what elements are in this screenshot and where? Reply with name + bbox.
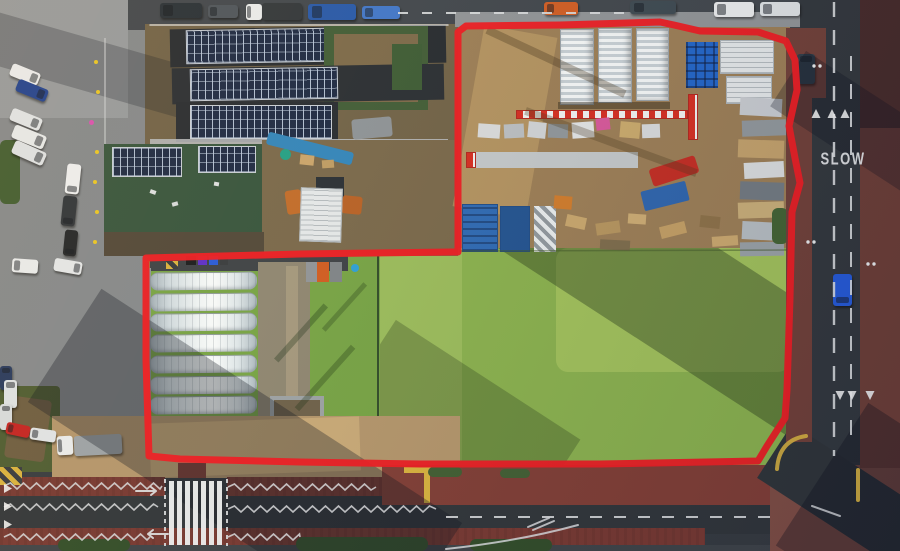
zebra-stripe-4 xyxy=(193,481,198,545)
cycle-symbol-dot-5 xyxy=(866,262,869,265)
give-way-triangle-up-1 xyxy=(812,109,821,118)
give-way-triangle-up-3 xyxy=(841,109,850,118)
lane-chevron-b xyxy=(533,521,554,530)
markings-and-boundary-overlay xyxy=(0,0,900,551)
field-fence-line xyxy=(460,250,786,251)
aerial-photograph: SLOW xyxy=(0,0,900,551)
cycle-symbol-dot-3 xyxy=(806,240,809,243)
give-way-triangle-down-1 xyxy=(836,391,845,400)
road-text-slow: SLOW xyxy=(820,148,866,168)
lane-chevron-a xyxy=(528,518,549,527)
cycle-symbol-dot-6 xyxy=(872,262,875,265)
zebra-stripe-1 xyxy=(169,481,174,545)
zigzag-line-6 xyxy=(228,534,300,540)
give-way-chevron-3 xyxy=(4,520,12,529)
zigzag-line-1 xyxy=(4,483,162,489)
cycle-symbol-dot-2 xyxy=(818,64,821,67)
give-way-chevron-1 xyxy=(4,484,12,493)
cycle-symbol-dot-4 xyxy=(812,240,815,243)
zebra-stripe-3 xyxy=(185,481,190,545)
zebra-stripe-7 xyxy=(217,481,222,545)
zebra-stripe-6 xyxy=(209,481,214,545)
junction-curve xyxy=(446,525,578,549)
kerb-curve xyxy=(812,506,840,516)
give-way-triangle-up-2 xyxy=(828,109,837,118)
site-boundary-line xyxy=(146,22,800,464)
zigzag-line-2 xyxy=(228,484,376,490)
give-way-triangle-down-2 xyxy=(848,391,857,400)
give-way-triangle-down-3 xyxy=(866,391,875,400)
zigzag-line-3 xyxy=(4,504,158,510)
junction-yellow-arc xyxy=(777,436,806,469)
cycle-symbol-dot-1 xyxy=(812,64,815,67)
zigzag-line-5 xyxy=(4,534,150,540)
zebra-stripe-2 xyxy=(177,481,182,545)
zigzag-line-4 xyxy=(228,506,436,512)
zebra-stripe-5 xyxy=(201,481,206,545)
